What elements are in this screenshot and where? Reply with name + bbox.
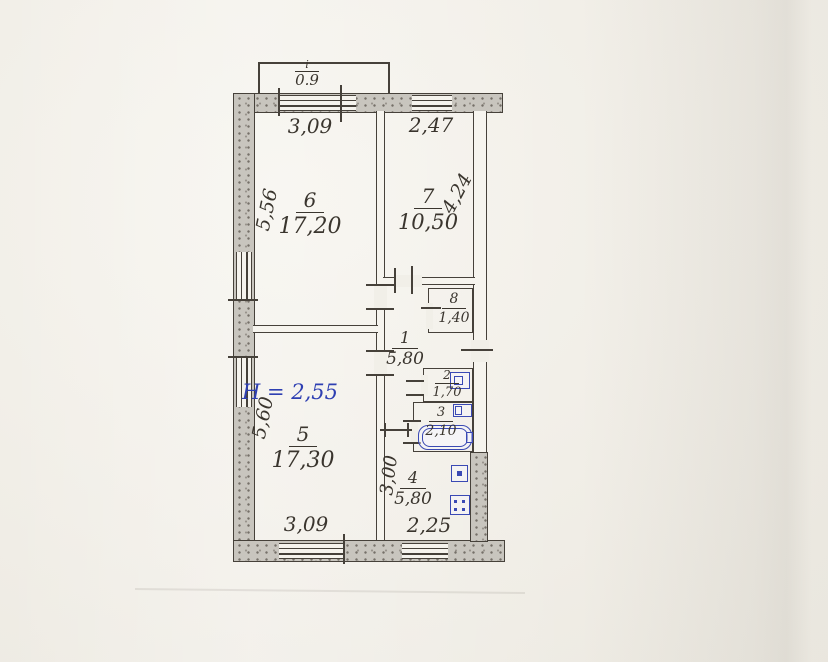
balcony-outline-left: [258, 62, 260, 94]
entry-door-opening: [471, 340, 489, 362]
room2-area: 1,70: [423, 384, 471, 400]
bathtub-tap-icon: [466, 432, 473, 443]
balcony-depth-value: 0.9: [288, 73, 326, 89]
window-room6-top: [279, 95, 356, 111]
window-room6-left: [236, 252, 252, 300]
room2-number: 2: [435, 369, 459, 384]
door-opening-room6: [374, 286, 387, 308]
room3-area: 2,10: [415, 422, 467, 439]
kitchen-door-jamb-right: [407, 423, 409, 437]
door-jamb-room7-right: [411, 266, 413, 294]
dim-bottom-right: 2,25: [392, 515, 466, 536]
room4-number: 4: [400, 470, 426, 489]
wall-bottom: [233, 540, 505, 562]
door-jamb-room7-left: [394, 268, 396, 293]
room6-number: 6: [296, 190, 325, 213]
room3-number: 3: [429, 406, 453, 422]
room1-area: 5,80: [377, 349, 433, 369]
stove-burner-icon: [462, 500, 465, 503]
dim-bottom-left: 3,09: [264, 514, 348, 535]
balcony-outline-right: [388, 62, 390, 94]
entry-door-tick: [461, 349, 493, 351]
door-jamb-room6-top: [366, 284, 394, 286]
wall-right-kitchen-section: [470, 452, 488, 542]
window-room5-bottom: [279, 543, 343, 559]
door-jamb-room2-top: [406, 380, 424, 382]
door-jamb-room6-bottom: [366, 308, 394, 310]
room3-label: 3 2,10: [415, 406, 467, 438]
kitchen-door-jamb-left: [384, 423, 386, 437]
room5-label: 5 17,30: [261, 424, 345, 472]
balcony-mark: i: [288, 60, 326, 70]
room8-area: 1,40: [430, 309, 478, 326]
stove-burner-icon: [454, 508, 457, 511]
dim-tick-left-wall-lower: [228, 356, 258, 358]
kitchen-sink-drain-icon: [457, 471, 462, 476]
stove-burner-icon: [454, 500, 457, 503]
dim-tick-top-window-left: [278, 88, 280, 116]
room8-number: 8: [442, 292, 467, 309]
dim-top-left: 3,09: [268, 116, 352, 137]
dim-tick-left-wall-upper: [228, 299, 258, 301]
room5-number: 5: [289, 424, 318, 447]
scan-shadow-line: [135, 588, 525, 594]
window-kitchen-bottom: [402, 543, 448, 559]
wall-left: [233, 93, 255, 562]
scanned-floor-plan: i 0.9: [0, 0, 828, 662]
room2-label: 2 1,70: [423, 369, 471, 399]
room1-number: 1: [392, 330, 418, 349]
door-jamb-room2-bottom: [406, 394, 424, 396]
stove-icon: [450, 495, 470, 515]
room1-label: 1 5,80: [377, 330, 433, 369]
room8-label: 8 1,40: [430, 292, 478, 325]
balcony-depth-label: i 0.9: [288, 60, 326, 89]
door-opening-room7: [394, 275, 422, 287]
window-room7-top: [412, 95, 452, 111]
wall-room6-room5: [253, 325, 378, 333]
wall-top: [233, 93, 503, 113]
stove-burner-icon: [462, 508, 465, 511]
room5-area: 17,30: [261, 447, 345, 472]
door-jamb-room5-bottom: [366, 374, 394, 376]
dim-top-right: 2,47: [395, 115, 467, 136]
dim-tick-bottom-window: [343, 534, 345, 564]
room6-area: 17,20: [268, 213, 352, 238]
